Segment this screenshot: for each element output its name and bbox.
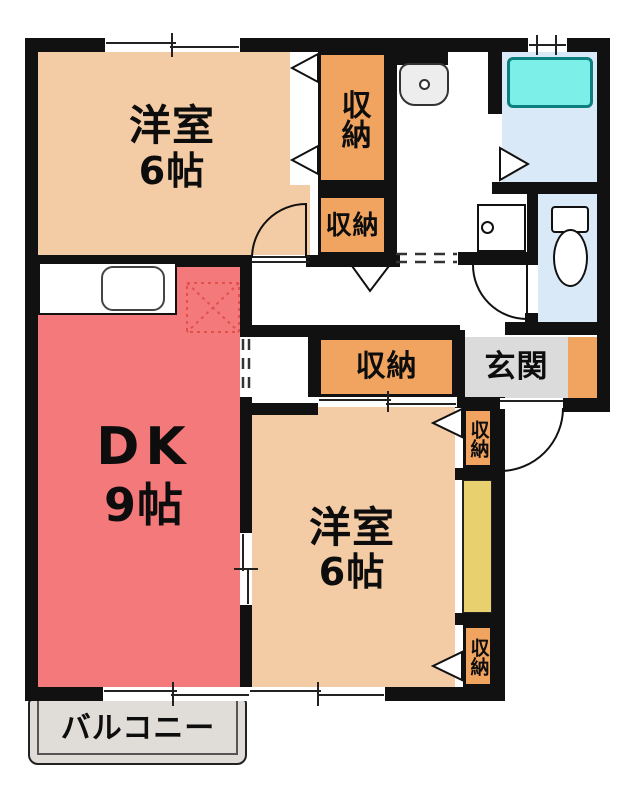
room-dk-name: DK	[44, 420, 244, 474]
wall-room-top-south	[306, 255, 400, 267]
closet-label: 収納	[320, 60, 385, 178]
balcony-label: バルコニー	[38, 712, 238, 746]
wall-right-upper	[597, 38, 610, 410]
entrance-label: 玄関	[465, 350, 568, 384]
wall-entrance-bottom	[563, 398, 610, 412]
wall-dk-east-lower	[240, 605, 252, 688]
wall-closet-divider	[318, 183, 390, 195]
room-western-bottom-name: 洋室	[252, 505, 452, 551]
washbasin-drain	[419, 79, 430, 90]
room-western-bottom-area: 6帖	[252, 551, 452, 593]
wall-entrance-west	[455, 330, 465, 398]
washing-machine-drain	[481, 221, 494, 234]
room-western-top-name: 洋室	[52, 103, 292, 149]
closet-door-strip	[455, 625, 463, 687]
wall-closet-east	[387, 52, 397, 267]
wall-corner	[525, 313, 538, 335]
wall-room-bottom-north	[240, 403, 318, 415]
entrance-doorway-band	[500, 398, 563, 409]
closet-label: 収納	[464, 411, 492, 466]
closet-label: 収納	[320, 212, 385, 240]
shoe-cabinet-area	[568, 337, 597, 398]
wall-stub-washer	[458, 252, 533, 265]
wall-toilet-south	[505, 322, 610, 335]
hall-strip	[462, 479, 493, 614]
wall-closet4-top	[455, 397, 505, 408]
room-dk-area: 9帖	[44, 480, 244, 530]
window-band	[105, 38, 240, 52]
window-band	[248, 687, 385, 701]
wall-strip-bottom	[455, 613, 505, 625]
sliding-door-band	[240, 533, 252, 605]
wall-bath-toilet	[492, 182, 610, 194]
open-doorway-band	[240, 337, 252, 397]
wall-hall-south	[250, 325, 460, 337]
closet-label: 収納	[320, 350, 453, 384]
bathtub	[507, 57, 593, 108]
window-band	[528, 38, 567, 52]
room-western-top-area: 6帖	[52, 150, 292, 192]
toilet-bowl	[553, 229, 588, 287]
sliding-door-band	[103, 687, 250, 701]
room-western-top-floor	[290, 185, 310, 255]
wall-right-lower	[492, 398, 505, 701]
closet-door-strip	[290, 52, 318, 185]
floor-plan: 洋室 6帖 DK 9帖 洋室 6帖 バルコニー 玄関 収納 収納 収納 収納 収…	[0, 0, 634, 800]
kitchen-sink	[101, 266, 165, 311]
doorway-band	[252, 255, 306, 267]
closet-label: 収納	[464, 628, 492, 685]
closet-door-strip	[455, 408, 463, 468]
room-dk-floor	[38, 267, 240, 687]
sliding-door-band	[318, 397, 457, 407]
wall-left	[25, 38, 38, 701]
wall-closet4-bottom	[455, 468, 505, 480]
wall-bath-west	[488, 38, 502, 114]
wall-dk-east-upper	[240, 255, 252, 337]
